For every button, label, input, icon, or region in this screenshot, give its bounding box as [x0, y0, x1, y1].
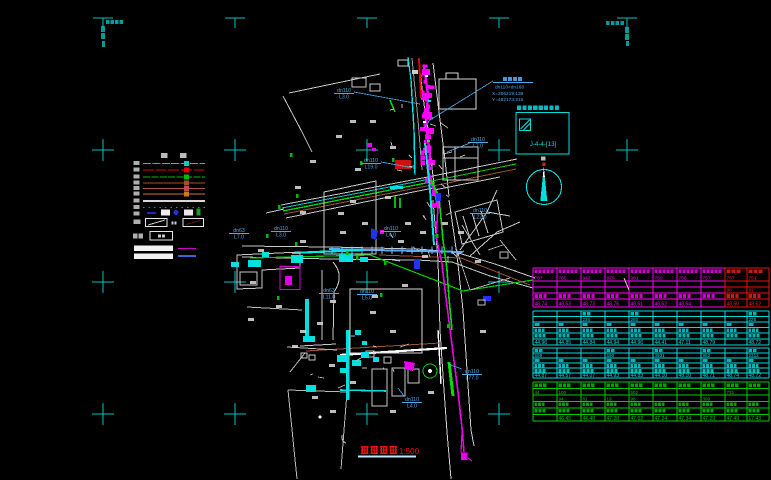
svg-text:47.29: 47.29: [703, 416, 716, 422]
svg-text:J-4-4-[13]: J-4-4-[13]: [530, 141, 557, 148]
svg-text:47.11: 47.11: [679, 340, 691, 346]
svg-text:765: 765: [559, 276, 567, 282]
svg-text:L7.0: L7.0: [234, 235, 244, 241]
svg-text:L5.0: L5.0: [362, 296, 372, 302]
svg-text:44.83: 44.83: [631, 373, 644, 379]
svg-text:44.07: 44.07: [583, 373, 596, 379]
svg-text:390: 390: [703, 396, 711, 401]
svg-text:L4.0: L4.0: [386, 233, 396, 239]
svg-text:47.34: 47.34: [679, 416, 692, 422]
svg-text:61: 61: [583, 396, 589, 401]
svg-text:dn110×dn160: dn110×dn160: [495, 85, 524, 91]
svg-text:502: 502: [631, 390, 639, 395]
svg-text:757: 757: [727, 276, 735, 282]
svg-text:721: 721: [727, 390, 735, 395]
svg-text:44.84: 44.84: [583, 340, 596, 346]
svg-text:98: 98: [631, 396, 637, 401]
svg-text:44.94: 44.94: [607, 340, 620, 346]
svg-text:234: 234: [583, 317, 591, 322]
svg-text:44.10: 44.10: [655, 373, 668, 379]
svg-text:44.96: 44.96: [535, 340, 548, 346]
svg-text:590: 590: [607, 353, 615, 358]
svg-text:979: 979: [607, 276, 615, 282]
svg-text:44.96: 44.96: [631, 340, 644, 346]
svg-text:44.48: 44.48: [583, 416, 596, 422]
svg-text:47.28: 47.28: [607, 416, 620, 422]
svg-text:2312: 2312: [749, 353, 760, 358]
svg-text:48.72: 48.72: [749, 373, 762, 379]
svg-text:280: 280: [631, 317, 639, 322]
svg-text:48.73: 48.73: [583, 302, 596, 308]
svg-text:981: 981: [631, 276, 639, 282]
svg-text:L22.0: L22.0: [474, 215, 487, 221]
svg-text:100: 100: [559, 390, 567, 395]
svg-text:19: 19: [607, 396, 613, 401]
svg-text:751: 751: [749, 276, 757, 282]
svg-text:47.02: 47.02: [631, 416, 644, 422]
svg-text:767: 767: [535, 276, 543, 282]
svg-text:17.43: 17.43: [749, 416, 762, 422]
svg-text:48.61: 48.61: [631, 302, 644, 308]
svg-text:48.74: 48.74: [727, 373, 740, 379]
svg-text:44.85: 44.85: [559, 340, 572, 346]
svg-text:98: 98: [727, 288, 733, 294]
svg-text:L3.0: L3.0: [276, 233, 286, 239]
svg-text:758: 758: [679, 276, 687, 282]
svg-text:48.71: 48.71: [703, 373, 716, 379]
svg-text:942: 942: [583, 276, 591, 282]
svg-text:48.72: 48.72: [749, 340, 762, 346]
svg-text:599: 599: [535, 353, 543, 358]
svg-text:46.45: 46.45: [559, 416, 572, 422]
svg-text:X=266219.138: X=266219.138: [492, 91, 524, 97]
svg-text:Y=482173.216: Y=482173.216: [492, 97, 524, 103]
svg-text:48.64: 48.64: [679, 302, 692, 308]
svg-text:47.49: 47.49: [727, 416, 740, 422]
svg-text:1:500: 1:500: [399, 447, 420, 456]
svg-text:47.24: 47.24: [655, 416, 668, 422]
svg-text:48.74: 48.74: [535, 302, 548, 308]
svg-text:L19.0: L19.0: [365, 165, 378, 171]
svg-text:952: 952: [703, 353, 711, 358]
svg-text:44.93: 44.93: [607, 373, 620, 379]
svg-text:94: 94: [559, 396, 565, 401]
svg-text:L11.0: L11.0: [323, 295, 336, 301]
svg-text:44: 44: [535, 390, 541, 395]
svg-text:L3.0: L3.0: [339, 95, 349, 101]
svg-text:48.79: 48.79: [703, 340, 716, 346]
svg-text:48.62: 48.62: [655, 302, 668, 308]
svg-text:48.76: 48.76: [607, 302, 620, 308]
svg-text:L77.0: L77.0: [466, 376, 479, 382]
svg-text:759: 759: [655, 276, 663, 282]
svg-text:91: 91: [749, 288, 755, 294]
svg-text:L7.0: L7.0: [473, 144, 483, 150]
svg-text:48.62: 48.62: [749, 302, 762, 308]
svg-text:3931: 3931: [655, 353, 666, 358]
svg-text:48.10: 48.10: [679, 373, 692, 379]
svg-text:48.63: 48.63: [559, 302, 572, 308]
svg-text:757: 757: [703, 276, 711, 282]
svg-text:225: 225: [749, 317, 757, 322]
svg-text:L4.0: L4.0: [407, 404, 417, 410]
svg-text:44.57: 44.57: [559, 373, 572, 379]
svg-text:44.87: 44.87: [535, 373, 548, 379]
svg-text:48.60: 48.60: [727, 302, 740, 308]
svg-text:44.41: 44.41: [655, 340, 668, 346]
